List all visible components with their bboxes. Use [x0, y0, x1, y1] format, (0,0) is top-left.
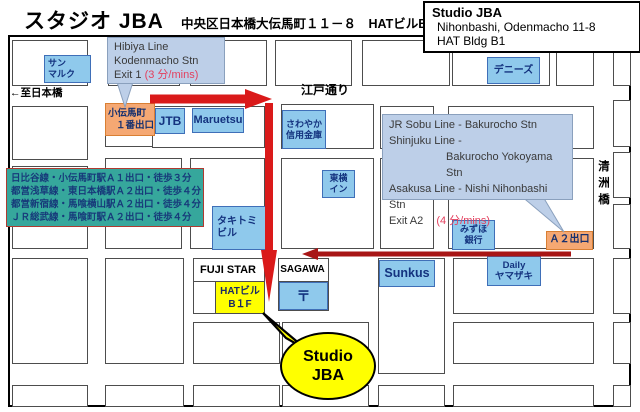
city-block — [12, 258, 88, 364]
walking-directions-box: 日比谷線・小伝馬町駅Ａ１出口・徒歩３分 都営浅草線・東日本橋駅Ａ２出口・徒歩４分… — [6, 168, 204, 227]
landmark-label: １番出口 — [106, 120, 154, 132]
landmark-label: Daily — [503, 260, 526, 271]
page-title: スタジオ JBA — [24, 5, 164, 35]
city-block — [613, 100, 631, 147]
address-info-box: Studio JBA Nihonbashi, Odenmacho 11-8 HA… — [423, 1, 640, 53]
landmark-label: タキトミ — [217, 216, 257, 228]
landmark-label: Maruetsu — [194, 114, 243, 127]
landmark-label: さわやか — [286, 119, 322, 130]
city-block — [193, 385, 280, 407]
info-box-line2: Nihonbashi, Odenmacho 11-8 — [432, 20, 632, 34]
landmark-maruetsu: Maruetsu — [192, 108, 244, 133]
walking-line: ＪＲ総武線・馬喰町駅Ａ２出口・徒歩４分 — [11, 211, 199, 224]
street-label-kiyosubashi: 清洲橋 — [595, 160, 611, 210]
landmark-a2-exit: Ａ２出口 — [546, 231, 593, 250]
landmark-sagawa: SAGAWA — [278, 258, 327, 281]
city-block — [105, 385, 184, 407]
landmark-dennys: デニーズ — [487, 57, 540, 84]
landmark-label: HATビル — [220, 285, 260, 298]
landmark-label: サン — [48, 58, 66, 69]
landmark-label: 東横 — [329, 173, 347, 184]
landmark-daily-yamazaki: Daily ヤマザキ — [487, 256, 541, 286]
exit-label: Exit A2 — [389, 215, 423, 227]
street-label-edo-dori: 江戸通り — [301, 81, 349, 98]
hibiya-callout: Hibiya Line Kodenmacho Stn Exit 1 (3 分/m… — [107, 37, 225, 84]
city-block — [12, 385, 88, 407]
walking-line: 都営浅草線・東日本橋駅Ａ２出口・徒歩４分 — [11, 185, 199, 198]
landmark-sawayaka-bank: さわやか 信用金庫 — [282, 110, 326, 149]
city-block — [193, 322, 280, 364]
city-block — [613, 152, 631, 198]
landmark-label: Ａ２出口 — [550, 234, 590, 247]
landmark-label: ビル — [217, 228, 237, 240]
city-block — [613, 322, 631, 364]
callout-line: Hibiya Line — [114, 40, 218, 54]
landmark-label: 銀行 — [464, 235, 482, 246]
walk-time-red: (4 分/mins) — [426, 215, 490, 227]
city-block — [613, 385, 631, 407]
city-block — [453, 322, 594, 364]
landmark-takitomi-bldg: タキトミ ビル — [212, 206, 269, 250]
studio-jba-bubble: Studio JBA — [280, 332, 376, 400]
bubble-label: Studio — [303, 347, 353, 366]
landmark-label: 小伝馬町 — [106, 108, 154, 120]
callout-line: JR Sobu Line - Bakurocho Stn — [389, 117, 566, 133]
street-label-to-nihonbashi: ←至日本橋 — [10, 85, 63, 100]
landmark-fuji-star: FUJI STAR — [193, 258, 263, 281]
landmark-label: Sunkus — [384, 266, 429, 281]
landmark-hat-bldg: HATビル B１F — [215, 281, 265, 314]
city-block — [613, 204, 631, 249]
city-block — [275, 40, 352, 86]
landmark-label: イン — [329, 184, 347, 195]
city-block — [378, 385, 445, 407]
walking-line: 日比谷線・小伝馬町駅Ａ１出口・徒歩３分 — [11, 172, 199, 185]
post-mark-icon: 〒 — [297, 288, 311, 305]
city-block — [12, 106, 88, 160]
landmark-kodenmacho-exit1: 小伝馬町 １番出口 — [105, 103, 155, 136]
landmark-label: 信用金庫 — [286, 130, 322, 141]
landmark-label: デニーズ — [494, 65, 534, 77]
city-block — [105, 258, 184, 364]
info-box-title: Studio JBA — [432, 5, 632, 20]
walking-line: 都営新宿線・馬喰横山駅Ａ２出口・徒歩４分 — [11, 198, 199, 211]
callout-line: Exit 1 (3 分/mins) — [114, 68, 218, 82]
landmark-post-office: 〒 — [279, 282, 328, 310]
landmark-label: JTB — [159, 114, 182, 128]
city-block — [453, 385, 594, 407]
landmark-label: マルク — [48, 69, 75, 80]
landmark-jtb: JTB — [155, 108, 185, 134]
callout-line: Shinjuku Line - — [389, 133, 566, 149]
landmark-label: FUJI STAR — [200, 264, 256, 276]
map-page: スタジオ JBA 中央区日本橋大伝馬町１１－８ HATビルB１ Studio J… — [0, 0, 640, 412]
walk-time-red: (3 分/mins) — [145, 69, 199, 81]
exit-label: Exit 1 — [114, 69, 142, 81]
landmark-label: ヤマザキ — [495, 271, 533, 282]
landmark-label: B１F — [228, 298, 251, 311]
callout-line: Exit A2 (4 分/mins) — [389, 213, 566, 229]
city-block — [613, 258, 631, 314]
callout-line: Asakusa Line - Nishi Nihonbashi Stn — [389, 181, 566, 213]
landmark-sunkus: Sunkus — [379, 260, 435, 287]
info-box-line3: HAT Bldg B1 — [432, 34, 632, 48]
jr-callout: JR Sobu Line - Bakurocho Stn Shinjuku Li… — [382, 114, 573, 200]
callout-line: Kodenmacho Stn — [114, 54, 218, 68]
landmark-sanmaruku: サン マルク — [44, 55, 91, 83]
landmark-toyoko-inn: 東横 イン — [322, 170, 355, 198]
callout-line: Bakurocho Yokoyama Stn — [389, 149, 566, 181]
address-text: 中央区日本橋大伝馬町１１－８ HATビルB１ — [181, 13, 440, 32]
bubble-label: JBA — [312, 366, 344, 385]
landmark-label: SAGAWA — [280, 264, 324, 275]
